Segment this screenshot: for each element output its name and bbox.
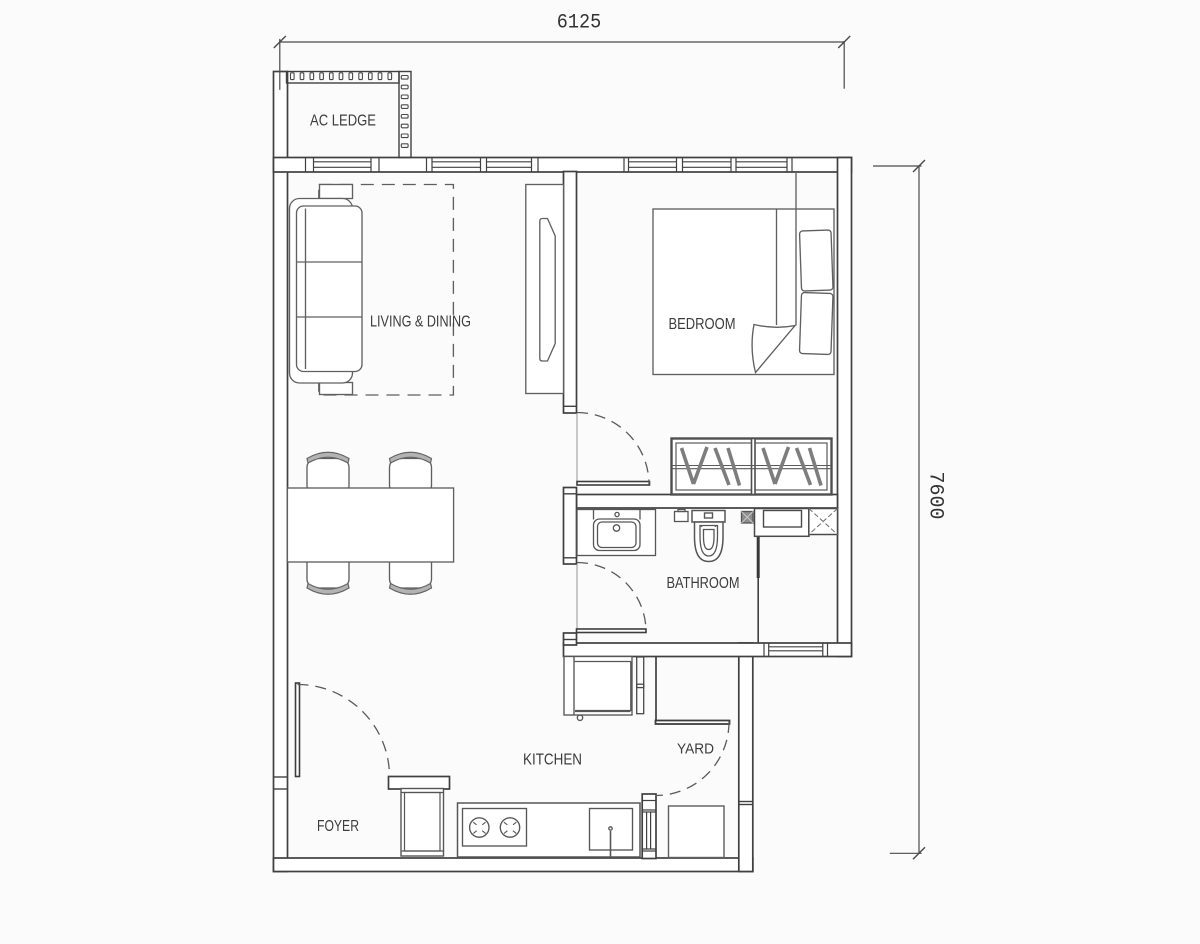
svg-text:YARD: YARD — [677, 742, 714, 758]
svg-text:LIVING & DINING: LIVING & DINING — [370, 313, 471, 330]
svg-text:KITCHEN: KITCHEN — [523, 751, 582, 768]
svg-text:7600: 7600 — [924, 472, 947, 520]
svg-text:FOYER: FOYER — [317, 818, 359, 835]
svg-text:AC LEDGE: AC LEDGE — [310, 113, 376, 130]
svg-text:BATHROOM: BATHROOM — [667, 575, 740, 592]
svg-text:BEDROOM: BEDROOM — [669, 316, 736, 333]
svg-text:6125: 6125 — [557, 12, 602, 35]
